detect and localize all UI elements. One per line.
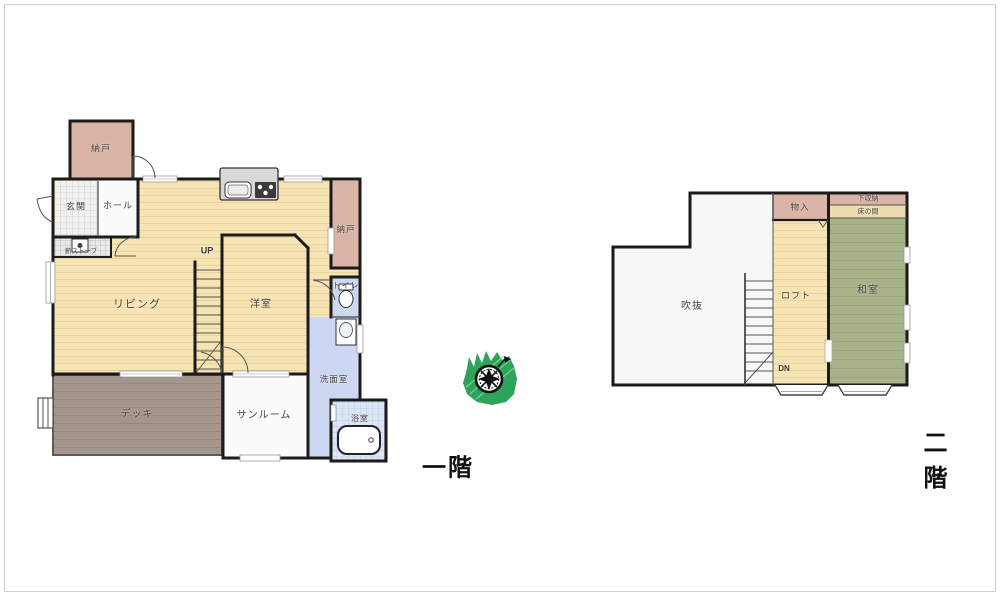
room-label-washitsu: 和室 [857,286,879,296]
room-label-fukinuke: 吹抜 [681,302,703,312]
stairs-up-label: UP [201,247,214,256]
bathtub-icon [338,426,380,454]
room-label-tokonoma: 床の間 [858,209,879,216]
room-label-shitashuno: 下収納 [858,196,879,203]
room-label-loft: ロフト [781,292,811,301]
room-label-deck: デッキ [121,410,154,420]
washbasin-icon [336,319,356,345]
room-label-nando2: 納戸 [336,225,355,234]
stairs-dn-label: DN [778,365,790,373]
kitchen-counter-icon [220,168,278,200]
floorplan-page: 納戸 玄関 ホール 薪ストーブ リビング UP 洋室 納戸 トイレ 洗面室 浴室… [0,0,1000,596]
room-label-toilet: トイレ [333,282,360,290]
room-label-senmen: 洗面室 [320,375,349,384]
room-label-living: リビング [113,300,161,311]
floor2-title: 二階 [924,423,975,493]
room-label-genkan: 玄関 [66,203,86,212]
room-label-bath: 浴室 [351,415,369,423]
room-label-monoire: 物入 [790,203,809,212]
room-label-youshitsu: 洋室 [250,300,272,310]
deck-steps-icon [38,398,53,428]
room-label-sunroom: サンルーム [237,411,292,421]
room-label-nando1: 納戸 [91,145,111,154]
floor1-title: 一階 [422,448,474,483]
north-compass-icon [463,351,517,405]
room-label-hall: ホール [103,202,133,211]
room-label-stove: 薪ストーブ [65,249,97,256]
